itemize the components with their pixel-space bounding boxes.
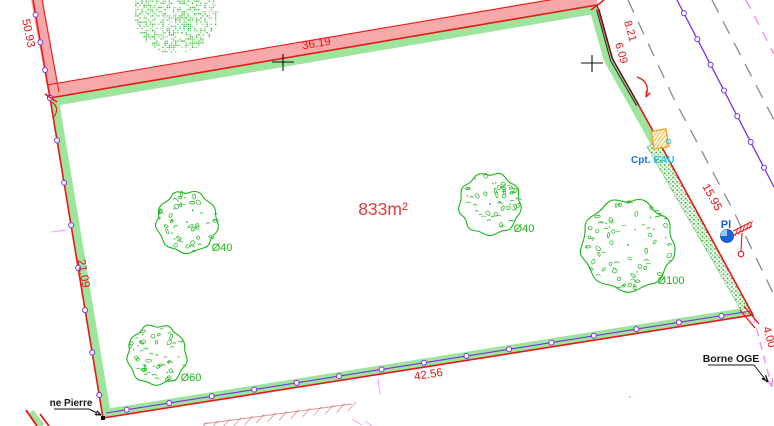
water-meter-label-cpt: Cpt.	[631, 155, 651, 166]
water-meter-symbol	[651, 129, 671, 149]
tree-diameter-label-40b: Ø40	[514, 223, 535, 235]
sw-parcel-fragment	[26, 410, 49, 426]
tree	[127, 325, 187, 385]
site-plan-canvas: 50.93 36.19 8.21 6.09 21.09 15.95 42.56 …	[0, 0, 774, 426]
borne-pierre-label: ne Pierre	[50, 398, 93, 409]
tree-diameter-label-40a: Ø40	[212, 242, 233, 254]
tree	[459, 173, 522, 235]
tree	[156, 191, 219, 253]
hydrant-label: Pl	[721, 219, 731, 231]
tree	[135, 0, 218, 52]
utility-line-purple	[677, 0, 774, 187]
dimension-label-8-21: 8.21	[621, 19, 638, 43]
dimension-label-4-00: 4.00	[760, 325, 774, 349]
dimension-label-21-09: 21.09	[75, 258, 92, 288]
cad-viewport: 50.93 36.19 8.21 6.09 21.09 15.95 42.56 …	[0, 0, 774, 426]
tree-diameter-label-100: Ø100	[658, 275, 685, 287]
parcel-area-label: 833m²	[358, 199, 408, 219]
neighbor-hatch	[199, 402, 356, 426]
borne-oge-label: Borne OGE	[703, 353, 760, 365]
dimension-label-15-95: 15.95	[699, 182, 723, 213]
fence-line-bottom	[106, 311, 751, 413]
faint-marks	[52, 230, 631, 426]
water-meter-label: Cpt.EAU	[631, 155, 675, 166]
dimension-label-42-56: 42.56	[413, 367, 443, 383]
dimension-label-50-93: 50.93	[19, 18, 37, 49]
tree-diameter-label-60: Ø60	[181, 372, 202, 384]
water-meter-label-eau: EAU	[653, 155, 674, 166]
survey-cross-marker	[581, 55, 603, 72]
